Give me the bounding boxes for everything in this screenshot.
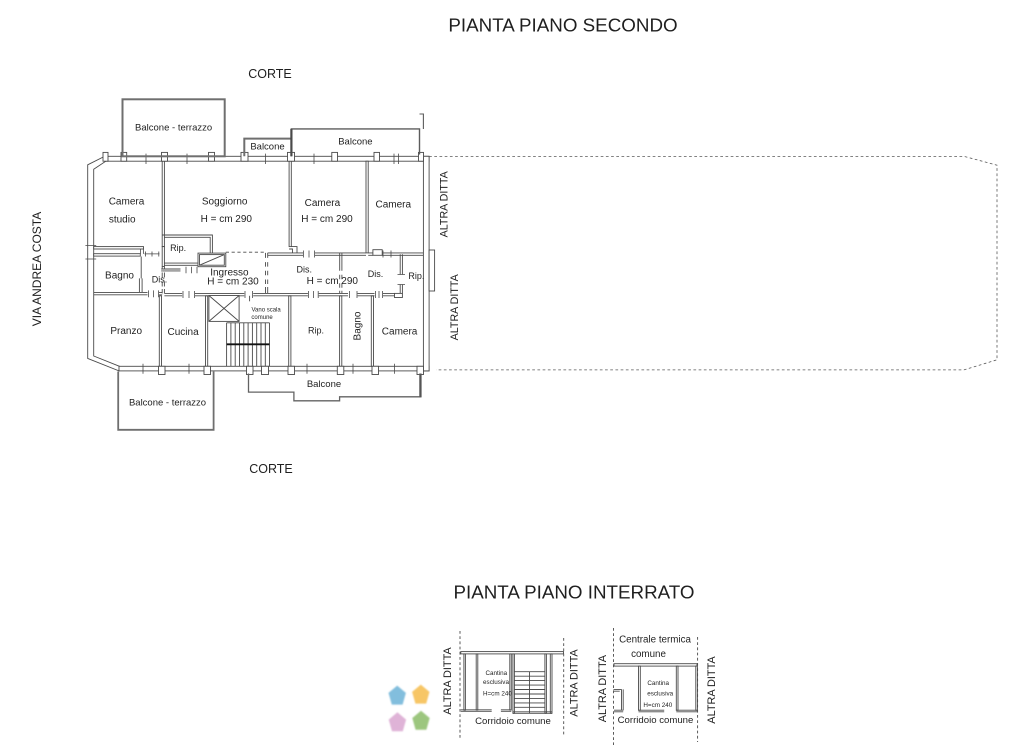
svg-text:H = cm 290: H = cm 290	[301, 214, 353, 225]
svg-text:esclusiva: esclusiva	[647, 690, 673, 697]
svg-text:H=cm 240: H=cm 240	[643, 702, 672, 709]
svg-text:Dis.: Dis.	[368, 269, 384, 279]
svg-text:esclusiva: esclusiva	[483, 679, 509, 686]
svg-text:PIANTA PIANO SECONDO: PIANTA PIANO SECONDO	[448, 15, 677, 36]
svg-text:CORTE: CORTE	[248, 67, 292, 81]
svg-text:Vano scala: Vano scala	[251, 307, 281, 313]
svg-text:Camera: Camera	[382, 327, 418, 338]
svg-text:H = cm 290: H = cm 290	[307, 276, 359, 287]
svg-text:Balcone - terrazzo: Balcone - terrazzo	[129, 398, 206, 409]
svg-text:VIA ANDREA COSTA: VIA ANDREA COSTA	[30, 212, 44, 326]
svg-text:Bagno: Bagno	[352, 311, 363, 340]
svg-text:Centrale termica: Centrale termica	[619, 635, 691, 646]
svg-text:Rip.: Rip.	[308, 326, 324, 336]
svg-text:H=cm 240: H=cm 240	[483, 690, 512, 697]
svg-text:H = cm 230: H = cm 230	[207, 277, 259, 288]
svg-text:Pranzo: Pranzo	[110, 326, 142, 337]
svg-text:Camera: Camera	[305, 198, 341, 209]
svg-text:Corridoio comune: Corridoio comune	[618, 715, 694, 726]
svg-text:Cantina: Cantina	[647, 680, 669, 687]
svg-text:Camera: Camera	[376, 200, 412, 211]
svg-text:Bagno: Bagno	[105, 270, 134, 281]
svg-text:Balcone - terrazzo: Balcone - terrazzo	[135, 123, 212, 134]
svg-text:comune: comune	[251, 315, 273, 321]
svg-text:ALTRA DITTA: ALTRA DITTA	[568, 649, 580, 717]
svg-text:H = cm 290: H = cm 290	[201, 214, 253, 225]
svg-text:Camera: Camera	[109, 196, 145, 207]
svg-text:Balcone: Balcone	[307, 379, 341, 390]
svg-text:ALTRA DITTA: ALTRA DITTA	[597, 654, 609, 722]
svg-text:Corridoio comune: Corridoio comune	[475, 716, 551, 727]
svg-text:ALTRA DITTA: ALTRA DITTA	[438, 170, 450, 237]
svg-text:Cucina: Cucina	[168, 327, 200, 338]
svg-text:PIANTA PIANO INTERRATO: PIANTA PIANO INTERRATO	[453, 582, 694, 603]
svg-text:CORTE: CORTE	[249, 462, 293, 476]
svg-text:Soggiorno: Soggiorno	[202, 197, 248, 208]
svg-text:Rip.: Rip.	[408, 271, 424, 281]
svg-text:Dis.: Dis.	[297, 265, 313, 275]
svg-text:Cantina: Cantina	[485, 670, 507, 677]
svg-text:Balcone: Balcone	[250, 141, 284, 152]
svg-text:ALTRA DITTA: ALTRA DITTA	[442, 647, 454, 715]
svg-text:studio: studio	[109, 215, 136, 226]
svg-text:comune: comune	[631, 649, 666, 660]
svg-text:Balcone: Balcone	[338, 137, 372, 148]
svg-text:ALTRA DITTA: ALTRA DITTA	[449, 273, 461, 340]
svg-text:Dis.: Dis.	[152, 275, 168, 285]
svg-text:ALTRA DITTA: ALTRA DITTA	[706, 656, 718, 724]
svg-text:Rip.: Rip.	[170, 243, 186, 253]
